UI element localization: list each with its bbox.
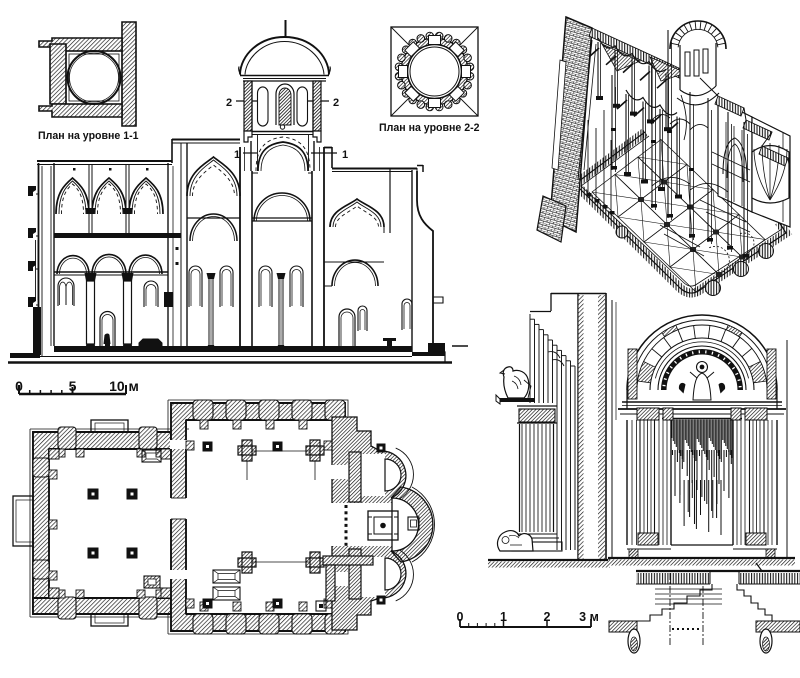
- svg-text:План на уровне 1-1: План на уровне 1-1: [38, 130, 139, 142]
- svg-text:0: 0: [457, 610, 464, 624]
- svg-text:1: 1: [342, 149, 348, 161]
- svg-text:3 м: 3 м: [579, 610, 599, 624]
- svg-text:2: 2: [544, 610, 551, 624]
- svg-text:2: 2: [333, 97, 339, 109]
- svg-text:1: 1: [234, 149, 240, 161]
- svg-text:10 м: 10 м: [109, 378, 139, 394]
- svg-text:2: 2: [226, 97, 232, 109]
- svg-text:0: 0: [15, 378, 23, 394]
- svg-text:План на уровне 2-2: План на уровне 2-2: [379, 122, 480, 134]
- svg-text:5: 5: [69, 378, 77, 394]
- svg-text:1: 1: [500, 610, 507, 624]
